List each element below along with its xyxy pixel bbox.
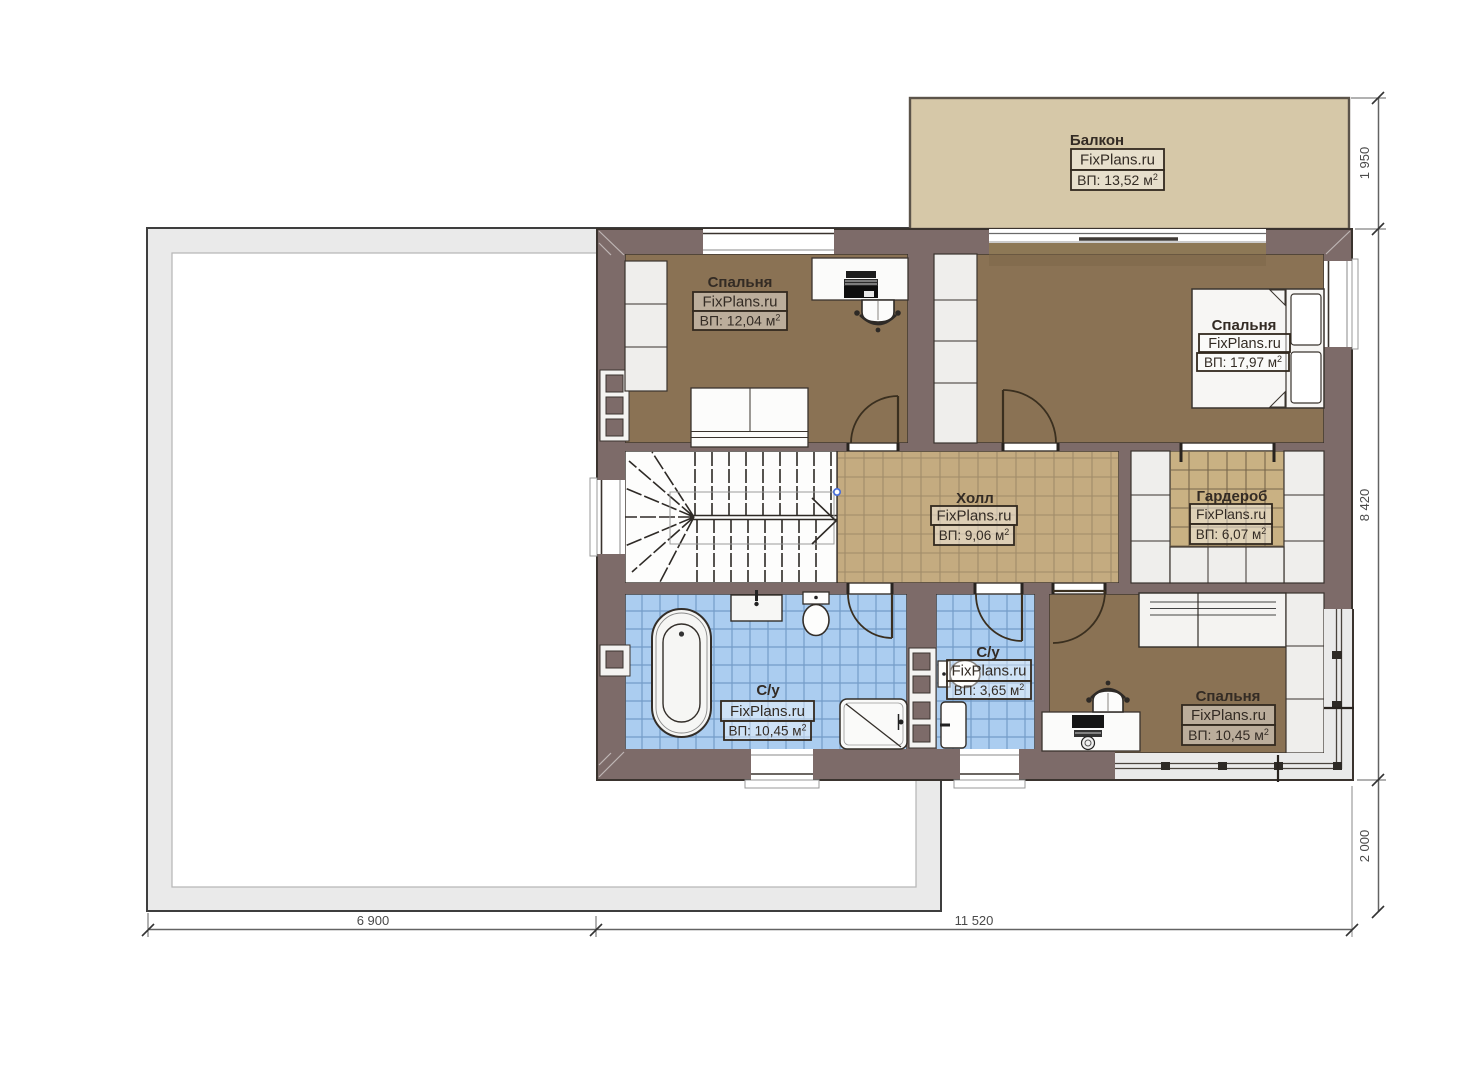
svg-text:FixPlans.ru: FixPlans.ru <box>951 663 1026 680</box>
svg-text:ВП: 13,52 м2: ВП: 13,52 м2 <box>1077 172 1158 188</box>
svg-text:Спальня: Спальня <box>708 274 773 291</box>
svg-text:Балкон: Балкон <box>1070 132 1124 149</box>
svg-text:FixPlans.ru: FixPlans.ru <box>702 294 777 311</box>
svg-text:Спальня: Спальня <box>1212 317 1277 334</box>
svg-text:ВП: 12,04 м2: ВП: 12,04 м2 <box>700 313 781 329</box>
svg-text:8 420: 8 420 <box>1357 489 1372 522</box>
svg-text:С/у: С/у <box>976 644 1000 661</box>
svg-text:FixPlans.ru: FixPlans.ru <box>1196 506 1266 522</box>
svg-text:Гардероб: Гардероб <box>1197 488 1268 505</box>
svg-text:FixPlans.ru: FixPlans.ru <box>1080 152 1155 169</box>
svg-text:ВП: 6,07 м2: ВП: 6,07 м2 <box>1196 526 1267 542</box>
svg-text:ВП: 9,06 м2: ВП: 9,06 м2 <box>939 527 1010 543</box>
svg-text:Спальня: Спальня <box>1196 688 1261 705</box>
svg-text:ВП: 3,65 м2: ВП: 3,65 м2 <box>954 682 1025 698</box>
svg-text:6 900: 6 900 <box>357 913 390 928</box>
svg-text:ВП: 10,45 м2: ВП: 10,45 м2 <box>728 723 806 739</box>
svg-text:1 950: 1 950 <box>1357 147 1372 180</box>
svg-text:С/у: С/у <box>756 682 780 699</box>
svg-text:Холл: Холл <box>956 490 994 507</box>
svg-text:FixPlans.ru: FixPlans.ru <box>730 703 805 720</box>
svg-text:ВП: 17,97 м2: ВП: 17,97 м2 <box>1204 354 1282 370</box>
svg-text:FixPlans.ru: FixPlans.ru <box>1208 336 1281 352</box>
svg-text:ВП: 10,45 м2: ВП: 10,45 м2 <box>1188 727 1269 743</box>
svg-text:2 000: 2 000 <box>1357 830 1372 863</box>
svg-text:FixPlans.ru: FixPlans.ru <box>936 508 1011 525</box>
svg-text:11 520: 11 520 <box>955 913 994 928</box>
svg-text:FixPlans.ru: FixPlans.ru <box>1191 707 1266 724</box>
